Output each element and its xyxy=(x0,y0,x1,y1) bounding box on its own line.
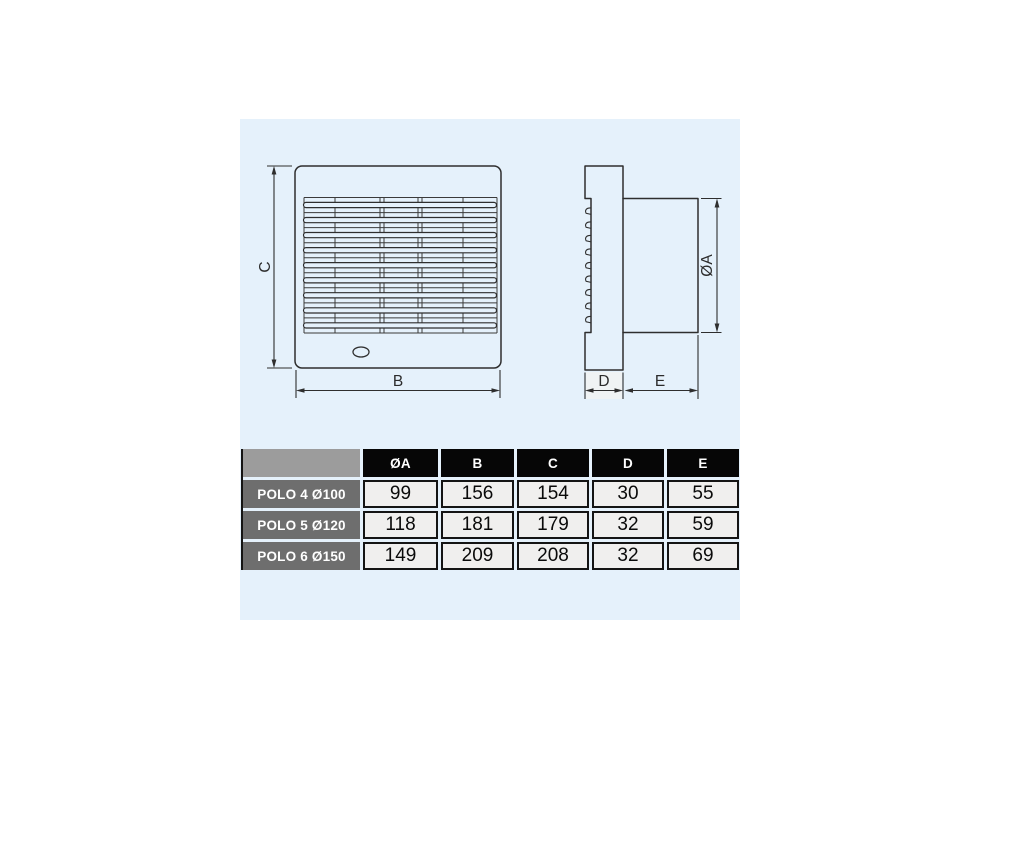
dimension-d-label: D xyxy=(598,373,609,390)
value-cell: 30 xyxy=(592,480,664,508)
value-cell: 154 xyxy=(517,480,589,508)
louver-slats xyxy=(304,202,497,328)
dimension-b: B xyxy=(296,370,500,398)
dimension-e-label: E xyxy=(655,373,665,390)
value-cell: 55 xyxy=(667,480,739,508)
value-cell: 149 xyxy=(363,542,438,570)
dimension-b-label: B xyxy=(393,373,403,390)
column-header: E xyxy=(667,449,739,477)
dimension-diameter-a-label: ØA xyxy=(699,254,716,277)
value-cell: 118 xyxy=(363,511,438,539)
dimension-diameter-a: ØA xyxy=(699,199,719,333)
column-header: B xyxy=(441,449,514,477)
dimension-c: C xyxy=(257,166,292,368)
model-label: POLO 6 Ø150 xyxy=(243,542,360,570)
dimension-d: D xyxy=(585,372,623,399)
column-header: D xyxy=(592,449,664,477)
value-cell: 181 xyxy=(441,511,514,539)
duct-outline xyxy=(623,199,698,333)
value-cell: 179 xyxy=(517,511,589,539)
face-plate-profile xyxy=(585,166,623,370)
value-cell: 208 xyxy=(517,542,589,570)
table-corner-cell xyxy=(243,449,360,477)
column-header: C xyxy=(517,449,589,477)
column-header: ØA xyxy=(363,449,438,477)
value-cell: 32 xyxy=(592,511,664,539)
value-cell: 59 xyxy=(667,511,739,539)
indicator-oval xyxy=(353,347,369,357)
louver-teeth xyxy=(586,208,591,323)
dimension-e: E xyxy=(625,335,699,399)
product-dimensions-panel: C B xyxy=(240,119,740,620)
side-view: ØA D E xyxy=(585,166,722,399)
model-label: POLO 5 Ø120 xyxy=(243,511,360,539)
value-cell: 32 xyxy=(592,542,664,570)
value-cell: 156 xyxy=(441,480,514,508)
front-view: C B xyxy=(257,166,501,398)
value-cell: 99 xyxy=(363,480,438,508)
value-cell: 209 xyxy=(441,542,514,570)
value-cell: 69 xyxy=(667,542,739,570)
page: C B xyxy=(0,0,1034,846)
dimension-c-label: C xyxy=(257,261,274,272)
dimensions-table: ØA B C D E POLO 4 Ø100 99 156 154 30 55 … xyxy=(241,449,739,570)
model-label: POLO 4 Ø100 xyxy=(243,480,360,508)
